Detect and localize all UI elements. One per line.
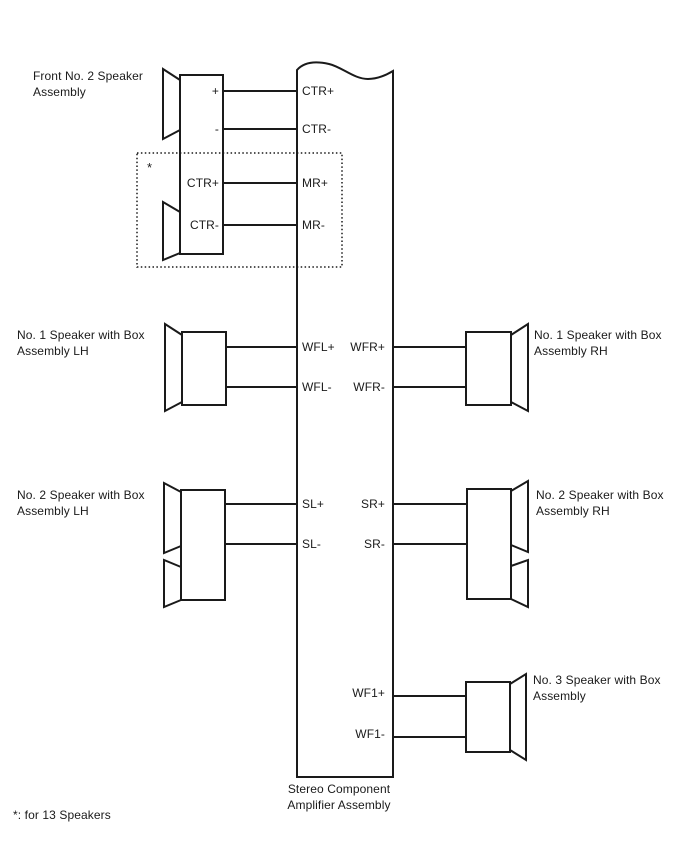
label-line: Assembly (33, 84, 143, 100)
amp-terminal-wf1-plus: WF1+ (336, 686, 385, 700)
no2-lh-speaker-label: No. 2 Speaker with Box Assembly LH (17, 487, 145, 519)
amp-terminal-wfr-minus: WFR- (336, 380, 385, 394)
amp-terminal-mr-plus: MR+ (302, 176, 328, 190)
speaker-body (182, 332, 226, 405)
amp-terminal-sl-plus: SL+ (302, 497, 324, 511)
amplifier-label: Stereo Component Amplifier Assembly (281, 781, 397, 813)
no1-rh-speaker-label: No. 1 Speaker with Box Assembly RH (534, 327, 662, 359)
speaker-horn (511, 324, 528, 411)
label-line: Assembly RH (536, 503, 664, 519)
speaker-body (181, 490, 225, 600)
label-line: Assembly LH (17, 503, 145, 519)
no2-lh-speaker-icon (164, 483, 225, 607)
diagram-canvas (0, 0, 688, 852)
amp-terminal-ctr-plus: CTR+ (302, 84, 334, 98)
no1-lh-speaker-label: No. 1 Speaker with Box Assembly LH (17, 327, 145, 359)
speaker-body (466, 682, 510, 752)
amp-terminal-wfl-minus: WFL- (302, 380, 332, 394)
asterisk-mark: * (147, 161, 152, 175)
amp-terminal-sr-plus: SR+ (336, 497, 385, 511)
label-line: No. 2 Speaker with Box (17, 487, 145, 503)
speaker-horn (511, 560, 528, 607)
no2-rh-speaker-label: No. 2 Speaker with Box Assembly RH (536, 487, 664, 519)
speaker-terminal-minus: - (168, 122, 219, 136)
amp-terminal-ctr-minus: CTR- (302, 122, 331, 136)
label-line: No. 1 Speaker with Box (534, 327, 662, 343)
speaker-terminal-ctr-minus: CTR- (168, 218, 219, 232)
no2-rh-speaker-icon (467, 481, 528, 607)
footnote: *: for 13 Speakers (13, 808, 111, 822)
label-line: Amplifier Assembly (281, 797, 397, 813)
label-line: Front No. 2 Speaker (33, 68, 143, 84)
wiring-diagram: Front No. 2 Speaker Assembly No. 1 Speak… (0, 0, 688, 852)
label-line: No. 2 Speaker with Box (536, 487, 664, 503)
speaker-horn (510, 674, 526, 760)
label-line: Stereo Component (281, 781, 397, 797)
front-no2-speaker-label: Front No. 2 Speaker Assembly (33, 68, 143, 100)
speaker-horn (164, 560, 181, 607)
label-line: Assembly (533, 688, 661, 704)
speaker-horn (164, 483, 181, 553)
speaker-horn (165, 324, 182, 411)
speaker-body (467, 489, 511, 599)
no1-rh-speaker-icon (466, 324, 528, 411)
label-line: No. 1 Speaker with Box (17, 327, 145, 343)
label-line: Assembly LH (17, 343, 145, 359)
amp-terminal-wfl-plus: WFL+ (302, 340, 335, 354)
speaker-terminal-ctr-plus: CTR+ (168, 176, 219, 190)
speaker-terminal-plus: + (168, 84, 219, 98)
no1-lh-speaker-icon (165, 324, 226, 411)
amp-terminal-wfr-plus: WFR+ (336, 340, 385, 354)
label-line: Assembly RH (534, 343, 662, 359)
speaker-horn (511, 481, 528, 552)
no3-speaker-icon (466, 674, 526, 760)
speaker-body (466, 332, 511, 405)
amplifier-box (297, 62, 393, 777)
amp-terminal-mr-minus: MR- (302, 218, 325, 232)
no3-speaker-label: No. 3 Speaker with Box Assembly (533, 672, 661, 704)
amp-terminal-sl-minus: SL- (302, 537, 321, 551)
amp-terminal-sr-minus: SR- (336, 537, 385, 551)
label-line: No. 3 Speaker with Box (533, 672, 661, 688)
amp-terminal-wf1-minus: WF1- (336, 727, 385, 741)
